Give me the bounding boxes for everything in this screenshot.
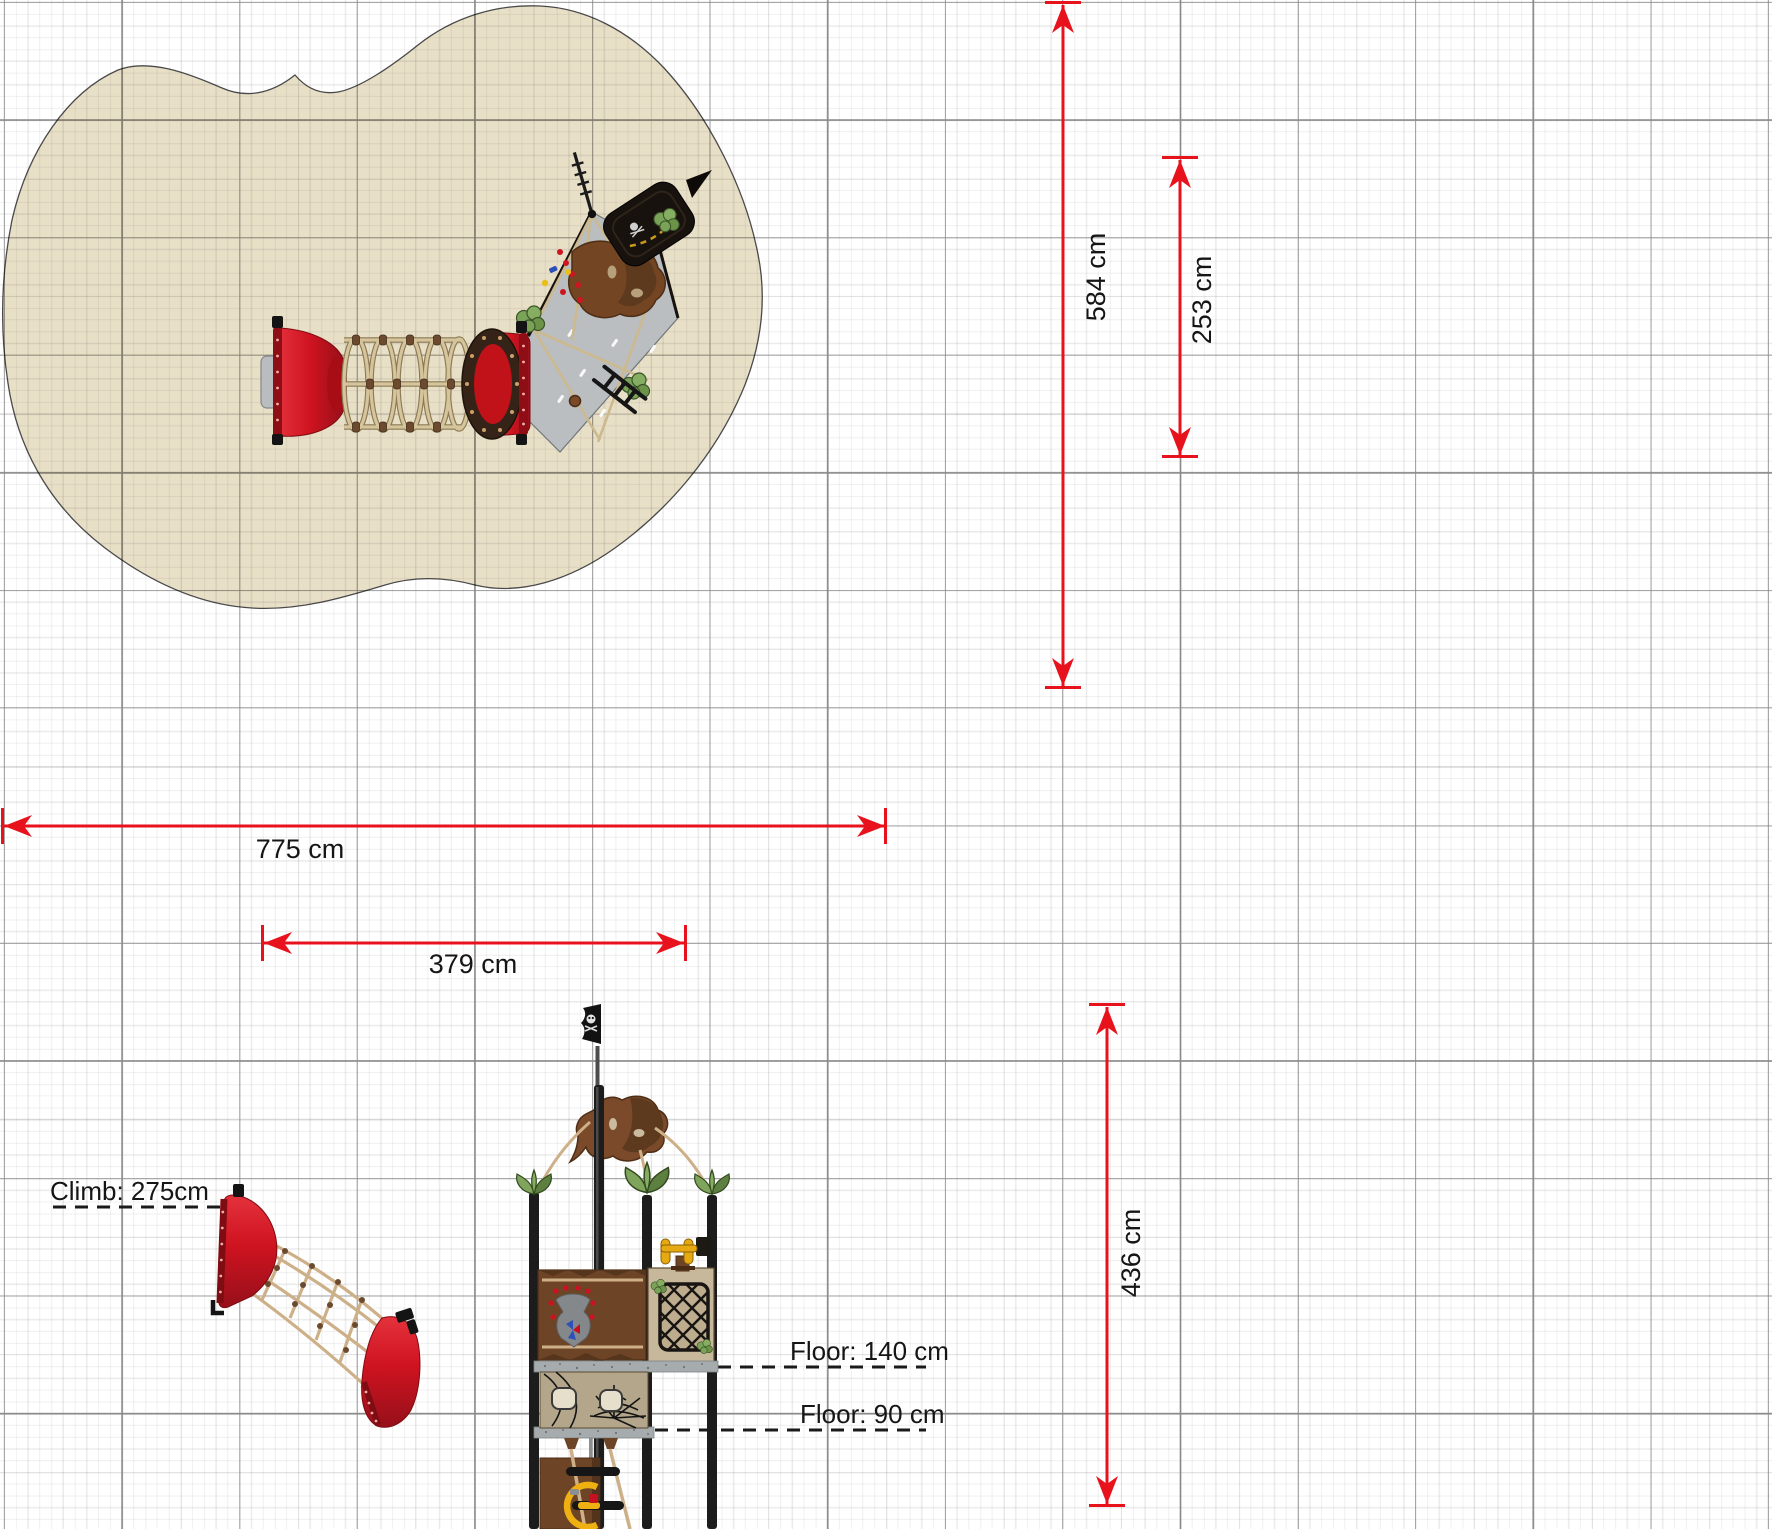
floor-plank-90	[534, 1427, 654, 1438]
red-funnel-right-top	[462, 321, 530, 445]
dim-253-label: 253 cm	[1187, 240, 1217, 360]
pirate-flag-icon	[686, 170, 712, 198]
mast-top-view	[569, 151, 599, 220]
dim-584-line	[1045, 1, 1081, 689]
playground-plan-drawing: 775 cm 379 cm 584 cm 253 cm 436 cm Climb…	[0, 0, 1772, 1529]
ladder-rung	[566, 1467, 620, 1476]
roof-hole	[608, 266, 617, 279]
lower-level	[540, 1438, 630, 1529]
red-cone-upper	[213, 1184, 277, 1313]
red-cone-lower	[362, 1307, 420, 1427]
dim-775-line	[1, 808, 887, 844]
dim-379-label: 379 cm	[403, 949, 543, 980]
skull-flag-icon	[581, 1004, 601, 1088]
red-funnel-left-top	[261, 316, 347, 445]
net-panel	[648, 1268, 716, 1362]
side-view-equipment	[213, 1004, 729, 1529]
dim-584-label: 584 cm	[1081, 217, 1111, 337]
roof-side-view	[570, 1096, 668, 1162]
periscope	[661, 1237, 711, 1271]
climb-height-label: Climb: 275cm	[50, 1176, 209, 1207]
dim-775-label: 775 cm	[230, 834, 370, 865]
roof-hole	[631, 289, 643, 298]
hanging-rope	[610, 1449, 630, 1529]
leaf-cap	[625, 1163, 668, 1193]
reference-dashes	[53, 1207, 926, 1430]
dim-436-label: 436 cm	[1116, 1193, 1146, 1313]
drawing-layer	[0, 0, 1772, 1529]
pirate-panel	[538, 1270, 646, 1360]
floor-plank-140	[534, 1361, 718, 1372]
floor-140-label: Floor: 140 cm	[790, 1336, 949, 1367]
rope-tunnel-top	[344, 335, 470, 432]
floor-90-label: Floor: 90 cm	[800, 1399, 945, 1430]
post-knob-top	[570, 396, 581, 407]
spider-web-icon	[540, 1372, 648, 1428]
top-view-equipment	[261, 151, 712, 452]
